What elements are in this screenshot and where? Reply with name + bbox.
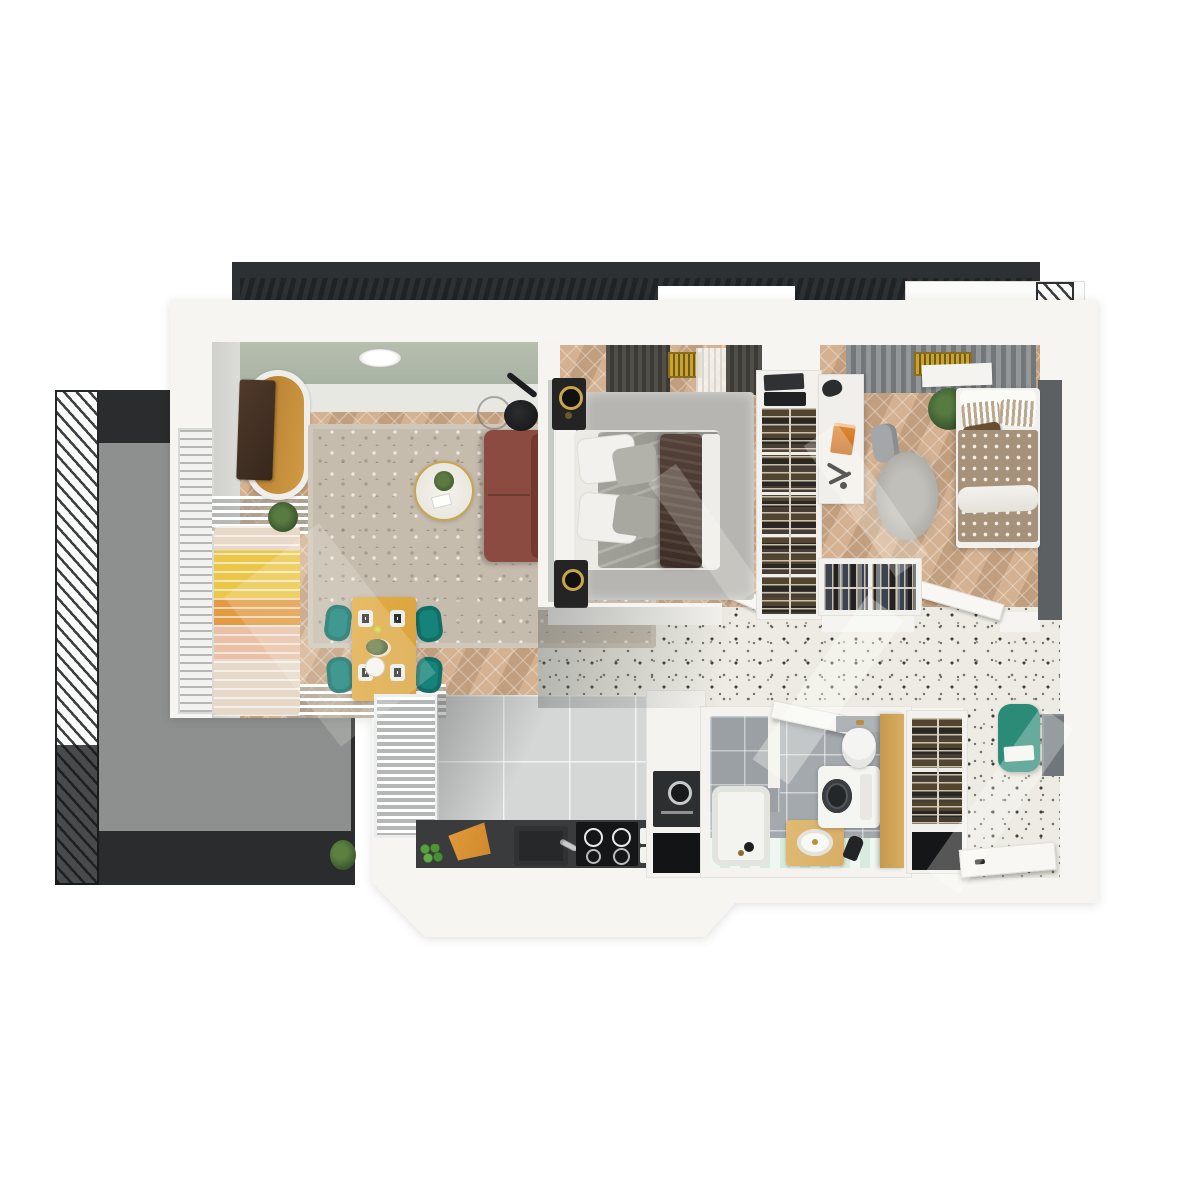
orange-book: [830, 423, 856, 456]
nightstand-speaker-top: [552, 378, 586, 430]
hall-mirror: [1042, 714, 1064, 776]
place-setting-2: [390, 610, 405, 627]
arc-lamp-shade: [504, 400, 538, 431]
oven-tall-column: [646, 690, 706, 878]
coffee-table: [414, 461, 474, 521]
bed-throw-brown: [660, 434, 702, 568]
speaker-ring: [559, 386, 583, 410]
vanity-tap: [812, 839, 818, 845]
oven-knob: [668, 781, 692, 805]
washer-door: [822, 779, 852, 813]
dining-chair-4: [414, 656, 443, 694]
bed-cushion-gray-2: [611, 493, 662, 539]
wardrobe-shelf-divider-2: [762, 492, 816, 495]
hob-ring-4: [613, 848, 630, 865]
kitchen-floor: [437, 695, 647, 827]
bench-cushion-label: [1004, 745, 1035, 762]
washing-machine: [818, 766, 880, 828]
storage-box-1: [764, 373, 805, 391]
storage-box-2: [764, 392, 806, 406]
coffee-table-magazine: [431, 493, 452, 509]
wardrobe-shelf-divider-3: [762, 534, 816, 537]
kids-wall-shelf: [922, 363, 993, 387]
hall-closet-hanging-clothes: [912, 718, 962, 824]
tv-panel: [236, 379, 275, 480]
kids-bottom-wall-right: [1000, 612, 1040, 632]
wardrobe-shelf-divider-4: [762, 574, 816, 577]
teal-bench: [998, 704, 1040, 772]
floor-plan-render: [0, 0, 1200, 1200]
cutting-board: [447, 822, 491, 861]
kids-duvet-fold: [958, 485, 1039, 514]
bathroom-yellow-cabinet: [880, 714, 904, 868]
daybed-slats: [214, 526, 300, 716]
oven-handle: [661, 811, 693, 814]
sofa-cushion-seam: [488, 494, 530, 496]
bed-cushion-gray-1: [611, 442, 661, 487]
place-setting-4: [390, 664, 405, 681]
induction-hob: [576, 822, 638, 866]
built-in-oven: [653, 771, 701, 827]
kids-striped-pillow-2: [999, 399, 1037, 427]
kitchen-sink: [514, 826, 568, 866]
place-setting-1: [358, 610, 373, 627]
sofa: [484, 430, 545, 562]
toilet: [842, 728, 876, 768]
kids-accent-dark-wall: [1038, 380, 1062, 620]
entry-door-handle: [975, 859, 985, 865]
kitchen-tall-shelving: [374, 694, 438, 838]
dining-chair-3: [325, 656, 354, 694]
kitchen-counter: [416, 820, 650, 868]
hob-ring-3: [586, 849, 601, 864]
bathroom-partition: [768, 712, 780, 788]
serving-plate: [365, 657, 385, 677]
coffee-table-plant: [434, 471, 454, 491]
dining-table: [352, 597, 416, 701]
bedroom-curtain-left: [606, 345, 670, 395]
toilet-flush-button: [856, 720, 864, 725]
ceiling-light: [358, 348, 402, 368]
hob-ring-2: [612, 828, 631, 847]
bedroom-sheer-curtain: [696, 348, 730, 398]
nightstand-speaker-bottom: [554, 560, 588, 608]
desk-lamp-base: [840, 482, 847, 489]
kids-round-rug: [876, 452, 938, 540]
kids-wardrobe-divider: [868, 564, 872, 610]
speaker-dot: [565, 412, 572, 419]
bed-headboard: [556, 426, 576, 570]
wardrobe-shelf-divider-1: [762, 452, 816, 455]
speaker-ring-2: [562, 569, 584, 591]
kids-wardrobe-hanging-clothes: [824, 564, 916, 610]
hall-closet-divider: [912, 768, 962, 772]
hall-closet-shoe-niche: [912, 832, 962, 870]
window-daybed: [214, 526, 300, 716]
dining-chair-2: [414, 605, 444, 644]
daybed-plant: [268, 502, 298, 532]
green-apples: [420, 844, 446, 866]
hob-ring-1: [584, 828, 603, 847]
carafe: [372, 624, 383, 635]
black-niche: [653, 833, 703, 873]
shower-fittings: [744, 842, 754, 852]
bed-sheet-fold: [702, 434, 720, 568]
shower-tub: [712, 786, 770, 866]
washer-panel: [860, 774, 872, 820]
flower-centerpiece: [366, 639, 388, 655]
living-window: [178, 428, 214, 714]
wardrobe-hanging-clothes: [762, 408, 816, 614]
